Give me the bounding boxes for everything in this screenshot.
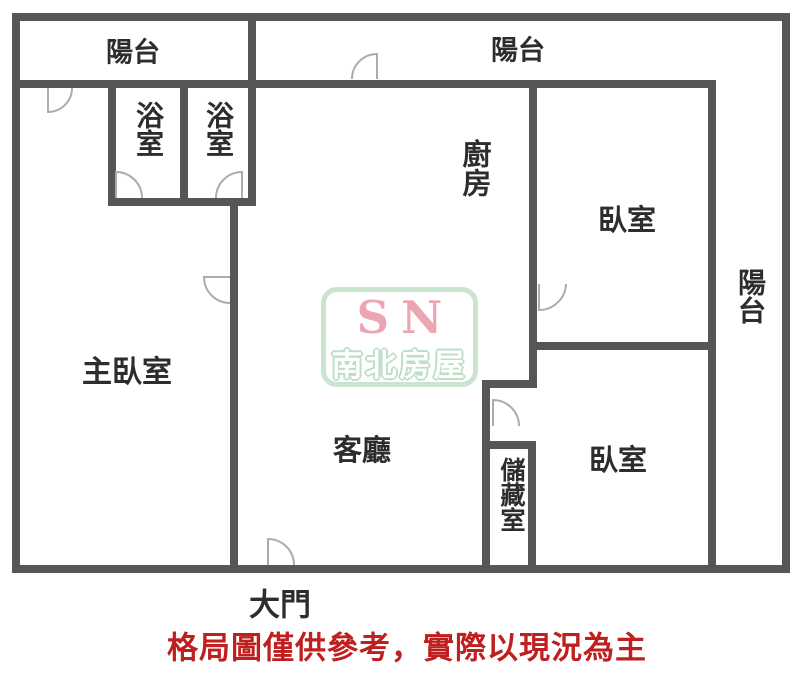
room-label-bathroom-left: 浴室: [132, 101, 164, 157]
room-label-bedroom-lower: 臥室: [589, 437, 647, 479]
room-label-kitchen: 廚房: [457, 139, 490, 197]
room-label-main-door: 大門: [249, 580, 311, 625]
door-arc-bedroom-lower: [493, 400, 519, 426]
room-label-balcony-top-left: 陽台: [106, 31, 160, 70]
watermark-sn-monogram: SN: [345, 292, 455, 342]
door-arc-master-bedroom: [204, 277, 230, 303]
door-arc-balcony-left: [48, 88, 72, 112]
door-arc-bathroom-left: [116, 172, 142, 198]
floor-plan: 陽台 陽台 浴室 浴室 廚房 臥室 陽台 主臥室 客廳 臥室 儲藏室 大門 SN…: [0, 0, 800, 675]
room-label-balcony-right: 陽台: [733, 268, 767, 324]
room-label-storage: 儲藏室: [493, 457, 528, 532]
room-label-living-room: 客廳: [333, 427, 391, 469]
room-label-bedroom-upper: 臥室: [598, 197, 656, 239]
room-label-balcony-top-right: 陽台: [491, 29, 545, 68]
door-arc-bedroom-upper: [539, 284, 566, 310]
company-watermark: SN 南北房屋: [321, 287, 478, 387]
door-arc-balcony-top: [352, 54, 377, 79]
door-arc-main-door: [268, 539, 294, 565]
room-label-bathroom-right: 浴室: [202, 101, 234, 157]
disclaimer-text: 格局圖僅供參考，實際以現況為主: [167, 623, 647, 668]
room-label-master-bedroom: 主臥室: [82, 347, 172, 391]
door-arc-bathroom-right: [216, 172, 242, 198]
watermark-company-name: 南北房屋: [332, 342, 468, 382]
